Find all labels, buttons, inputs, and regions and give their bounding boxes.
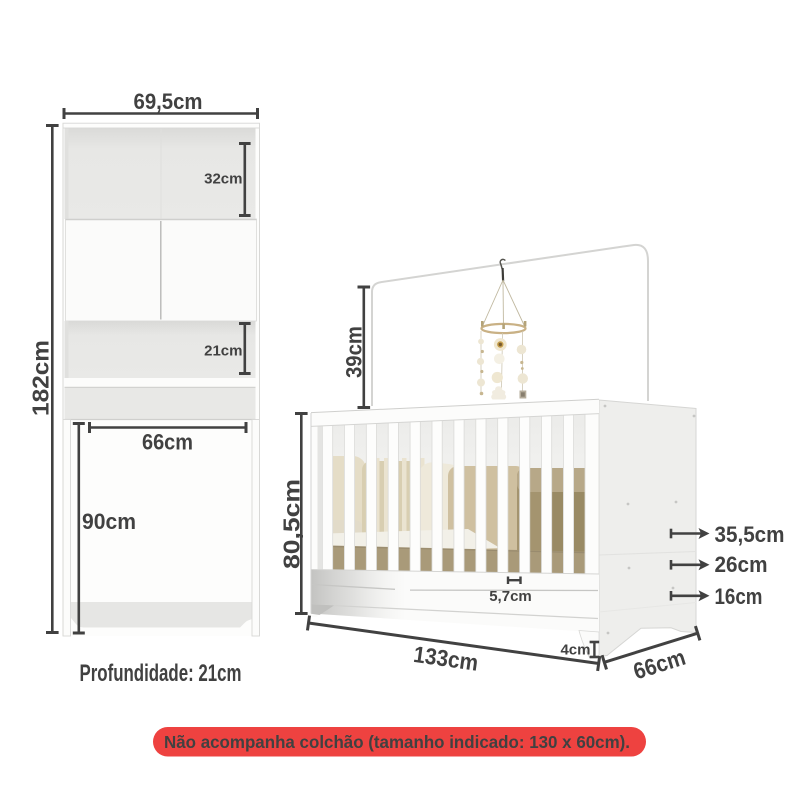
- svg-text:66cm: 66cm: [142, 430, 193, 455]
- svg-text:66cm: 66cm: [630, 644, 688, 685]
- svg-text:69,5cm: 69,5cm: [134, 89, 203, 114]
- svg-text:90cm: 90cm: [82, 509, 136, 534]
- svg-text:5,7cm: 5,7cm: [489, 588, 532, 605]
- svg-text:4cm: 4cm: [560, 642, 590, 659]
- svg-text:39cm: 39cm: [342, 326, 367, 378]
- svg-text:32cm: 32cm: [204, 171, 242, 188]
- svg-text:Não acompanha colchão (tamanho: Não acompanha colchão (tamanho indicado:…: [164, 732, 630, 752]
- svg-text:182cm: 182cm: [28, 340, 54, 416]
- svg-text:80,5cm: 80,5cm: [279, 479, 305, 569]
- svg-text:21cm: 21cm: [204, 343, 242, 360]
- svg-text:16cm: 16cm: [715, 584, 763, 609]
- svg-text:35,5cm: 35,5cm: [715, 522, 785, 547]
- svg-text:Profundidade: 21cm: Profundidade: 21cm: [80, 660, 242, 687]
- svg-text:26cm: 26cm: [715, 552, 768, 577]
